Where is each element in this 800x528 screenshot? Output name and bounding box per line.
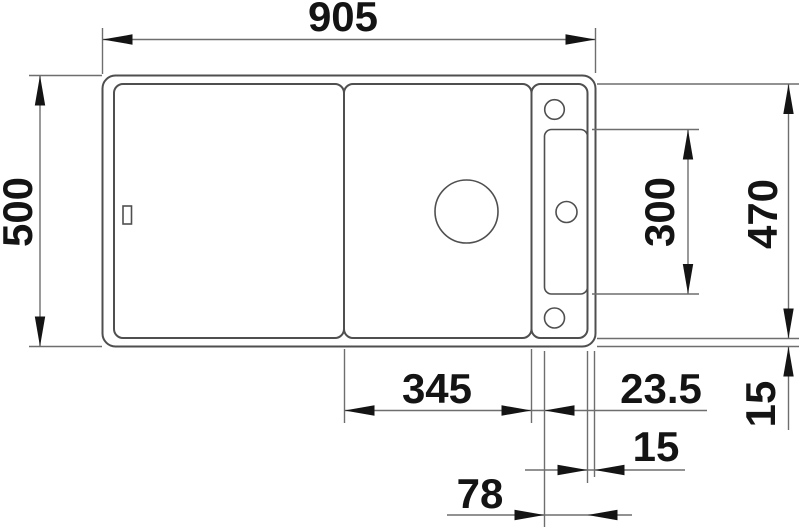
tap-hole-bottom: [545, 308, 565, 328]
arrowhead: [588, 510, 618, 520]
arrowhead: [345, 405, 375, 415]
dim-inner-depth: 470: [597, 84, 799, 339]
dim-recess-width-row: 78: [447, 470, 632, 520]
dim-board-length-row: 345 23.5: [345, 365, 708, 416]
sink-dimension-drawing: 905 500 470 300 15 345 23.5: [0, 0, 800, 528]
dim-overall-depth-label: 500: [0, 177, 41, 247]
dim-board-recess-gap-label: 23.5: [620, 365, 702, 412]
arrowhead: [545, 405, 575, 415]
arrowhead: [783, 309, 793, 339]
dim-overall-width-label: 905: [308, 0, 378, 40]
arrowhead: [595, 465, 625, 475]
dim-overall-depth: 500: [0, 76, 102, 347]
sink-outer-rim: [103, 76, 596, 347]
sink-top-view: [103, 76, 596, 347]
dim-recess-edge-gap-label: 15: [633, 423, 680, 470]
tap-hole-top: [545, 100, 565, 120]
dim-bottom-rim-label: 15: [737, 381, 784, 428]
overflow-slot: [123, 206, 132, 224]
main-bowl: [114, 84, 344, 338]
dim-board-length-label: 345: [402, 365, 472, 412]
board-hole: [435, 180, 498, 243]
dim-recess-length: 300: [592, 130, 699, 295]
arrowhead: [103, 34, 133, 44]
cutting-board-section: [344, 84, 532, 338]
tap-hole-middle: [556, 202, 577, 223]
arrowhead: [515, 510, 545, 520]
arrowhead: [566, 34, 596, 44]
arrowhead: [502, 405, 532, 415]
tap-ledge: [532, 84, 588, 338]
arrowhead: [35, 317, 45, 347]
arrowhead: [683, 264, 693, 294]
dim-inner-depth-label: 470: [739, 179, 786, 249]
tap-ledge-recess: [545, 130, 588, 295]
arrowhead: [683, 130, 693, 160]
dim-recess-edge-gap-row: 15: [525, 423, 685, 475]
arrowhead: [783, 347, 793, 377]
dim-recess-width-label: 78: [457, 470, 504, 517]
arrowhead: [783, 84, 793, 114]
drawing-canvas: 905 500 470 300 15 345 23.5: [0, 0, 800, 528]
arrowhead: [558, 465, 588, 475]
dim-overall-width: 905: [103, 0, 596, 74]
arrowhead: [35, 76, 45, 106]
dim-recess-length-label: 300: [636, 177, 683, 247]
